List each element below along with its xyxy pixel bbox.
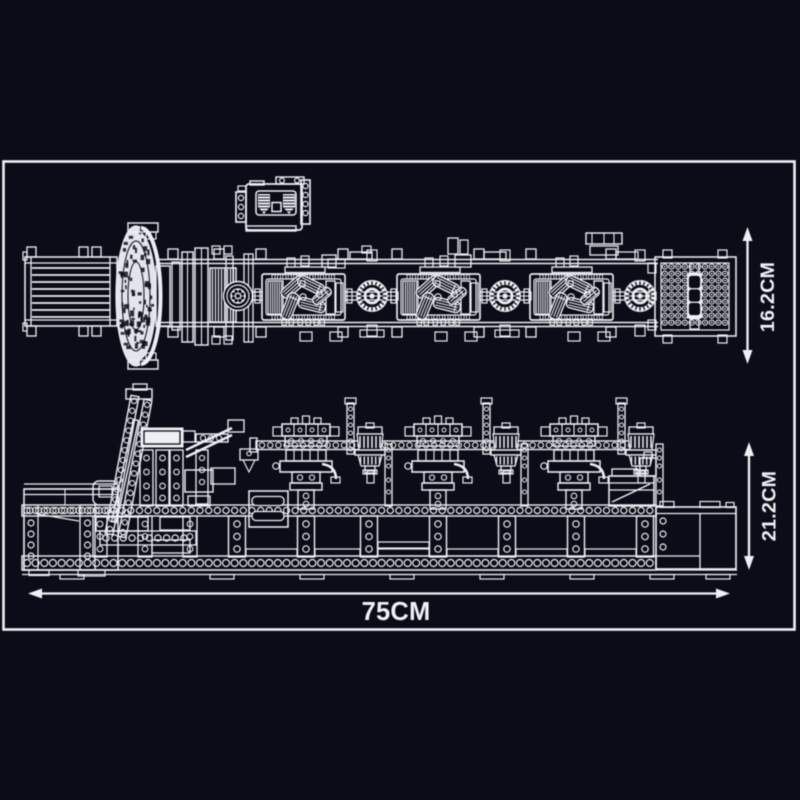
- svg-text:16.2CM: 16.2CM: [757, 262, 779, 332]
- svg-text:75CM: 75CM: [362, 598, 431, 626]
- svg-text:21.2CM: 21.2CM: [759, 471, 781, 541]
